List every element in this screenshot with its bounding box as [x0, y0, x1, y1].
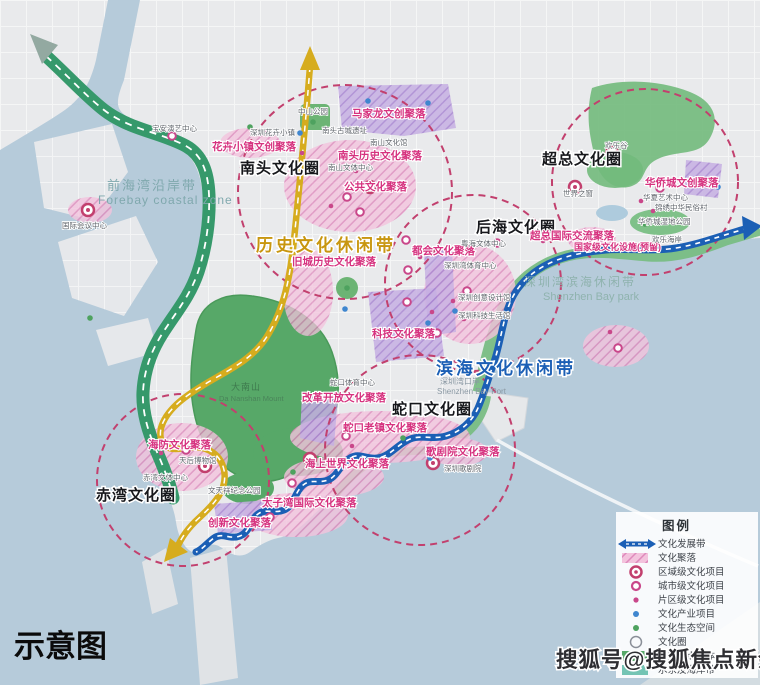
planning-map-screenshot: 前海湾沿岸带 Forebay coastal zone 深圳湾滨海休闲带 She… [0, 0, 760, 685]
legend-icon-eco-space [633, 625, 639, 631]
schematic-caption: 示意图 [14, 629, 107, 664]
danan-mountain-label-en: Da Nanshan Mount [219, 394, 285, 403]
legend-label-culture-circle: 文化圈 [658, 636, 687, 648]
poi-label-chiwan-sports: 赤湾文体中心 [143, 472, 188, 482]
cluster-label-nantou-history: 南头历史文化聚落 [338, 149, 422, 162]
cluster-label-public: 公共文化聚落 [344, 180, 407, 193]
legend-icon-cluster [622, 553, 648, 563]
legend-icon-region-project [631, 567, 642, 578]
cluster-label-chuangxin: 创新文化聚落 [207, 516, 271, 529]
cluster-label-haifang: 海防文化聚落 [148, 438, 211, 451]
shenzhen-bay-park-label-cn: 深圳湾滨海休闲带 [524, 274, 636, 289]
watermark-text: 搜狐号@搜狐焦点新余站 [556, 647, 760, 672]
shenzhen-bay-park-label-en: Shenzhen Bay park [543, 291, 640, 303]
cluster-label-chaozong-intl: 超总国际交流聚落 [529, 229, 614, 242]
poi-label-nantou-ruins: 南头古城遗址 [322, 125, 367, 135]
legend-label-industry-project: 文化产业项目 [658, 608, 715, 620]
legend-label-eco-space: 文化生态空间 [658, 622, 715, 634]
legend-label-district-project: 片区级文化项目 [658, 594, 725, 606]
circle-label-nantou: 南头文化圈 [240, 159, 320, 177]
poi-label-sports-center-ns: 南山文体中心 [328, 162, 373, 172]
cluster-label-oct: 华侨城文创聚落 [645, 176, 719, 189]
legend-icon-city-project [632, 582, 640, 590]
cluster-label-seaworld: 海上世界文化聚落 [305, 457, 389, 470]
poi-label-performance-center: 宝安演艺中心 [152, 123, 197, 133]
poi-label-convention-center: 国际会议中心 [62, 220, 107, 230]
poi-label-bay-sports: 深圳湾体育中心 [444, 260, 497, 270]
circle-label-chaozong: 超总文化圈 [541, 150, 622, 168]
danan-mountain-label-cn: 大南山 [231, 381, 261, 392]
poi-label-flower-town: 深圳花卉小镇 [250, 127, 295, 137]
legend-label-city-project: 城市级文化项目 [658, 580, 725, 592]
forebay-zone-label-en: Forebay coastal zone [98, 193, 233, 207]
poi-label-tech-life: 深圳科技生活馆 [458, 310, 511, 320]
poi-label-wentianxiang-park: 文天祥纪念公园 [208, 485, 261, 495]
legend-label-development-belt: 文化发展带 [658, 538, 706, 550]
cluster-label-tech: 科技文化聚落 [372, 327, 435, 340]
poi-label-yuehai-center: 粤海文体中心 [461, 238, 506, 248]
circle-label-shekou: 蛇口文化圈 [392, 400, 472, 418]
map-canvas: 前海湾沿岸带 Forebay coastal zone 深圳湾滨海休闲带 She… [0, 0, 760, 685]
poi-label-design-museum: 深圳创意设计馆 [458, 292, 511, 302]
poi-label-window-world: 世界之窗 [563, 188, 593, 198]
poi-label-zhongshan-park: 中山公园 [298, 106, 328, 116]
cluster-label-shekou-oldtown: 蛇口老镇文化聚落 [343, 421, 427, 434]
poi-label-opera-house: 深圳歌剧院 [444, 463, 482, 473]
poi-label-splendid-china: 锦绣中华民俗村 [655, 202, 708, 212]
belt-label-history: 历史文化休闲带 [256, 235, 396, 255]
legend-title: 图例 [662, 518, 691, 533]
oct-lake [596, 205, 628, 221]
cluster-label-reform: 改革开放文化聚落 [302, 391, 386, 404]
poi-label-oct-wetland: 华侨城湿地公园 [638, 216, 691, 226]
poi-label-culture-hall: 南山文化馆 [370, 137, 408, 147]
cluster-label-majialong: 马家龙文创聚落 [352, 107, 426, 120]
legend-label-region-project: 区域级文化项目 [658, 566, 725, 578]
bay-port-label-en: Shenzhen Bay Port [437, 387, 507, 396]
cluster-label-oldtown-history: 旧城历史文化聚落 [292, 255, 376, 268]
cluster-label-opera: 歌剧院文化聚落 [426, 445, 500, 458]
belt-label-coastal: 滨海文化休闲带 [436, 358, 576, 378]
poi-label-tianhou-museum: 天后博物馆 [179, 455, 217, 465]
legend-icon-industry-project [633, 611, 639, 617]
poi-label-huaxia-art: 华夏艺术中心 [643, 192, 688, 202]
cluster-label-national-facility: 国家级文化设施(预留) [574, 241, 661, 252]
legend-label-cluster: 文化聚落 [658, 552, 697, 564]
forebay-zone-label-cn: 前海湾沿岸带 [107, 178, 197, 193]
cluster-label-huahui: 花卉小镇文创聚落 [212, 140, 296, 153]
circle-label-chiwan: 赤湾文化圈 [96, 486, 176, 504]
cluster-label-taiziwan: 太子湾国际文化聚落 [261, 496, 357, 509]
poi-label-shekou-sports: 蛇口体育中心 [330, 377, 375, 387]
poi-label-happy-valley: 欢乐谷 [605, 140, 628, 150]
poi-label-happy-coast: 欢乐海岸 [652, 234, 682, 244]
legend-icon-district-project [633, 597, 638, 602]
